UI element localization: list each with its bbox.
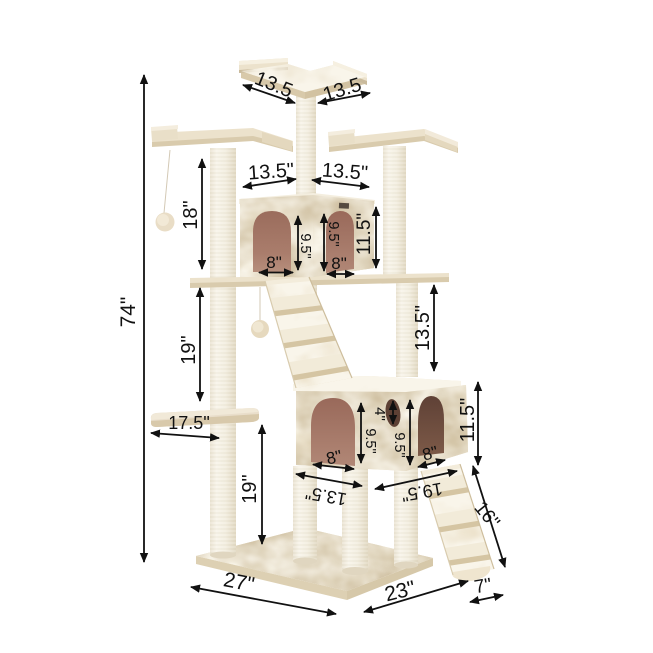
svg-text:9.5": 9.5" xyxy=(297,233,313,258)
svg-text:17.5": 17.5" xyxy=(168,413,209,433)
svg-text:9.5": 9.5" xyxy=(325,221,341,246)
svg-text:74": 74" xyxy=(117,297,140,328)
svg-text:4": 4" xyxy=(371,407,388,421)
svg-text:18": 18" xyxy=(180,200,202,229)
svg-text:11.5": 11.5" xyxy=(457,398,479,443)
svg-text:19": 19" xyxy=(239,474,261,503)
svg-text:11.5": 11.5" xyxy=(354,213,375,255)
svg-text:8": 8" xyxy=(266,253,282,272)
svg-text:19": 19" xyxy=(178,335,200,364)
svg-text:13.5": 13.5" xyxy=(412,305,434,351)
svg-text:8": 8" xyxy=(331,254,347,273)
svg-text:9.5": 9.5" xyxy=(391,432,407,457)
svg-text:7": 7" xyxy=(473,575,494,599)
svg-text:13.5": 13.5" xyxy=(247,159,294,184)
svg-text:9.5": 9.5" xyxy=(362,428,378,453)
svg-text:13.5": 13.5" xyxy=(321,159,368,184)
